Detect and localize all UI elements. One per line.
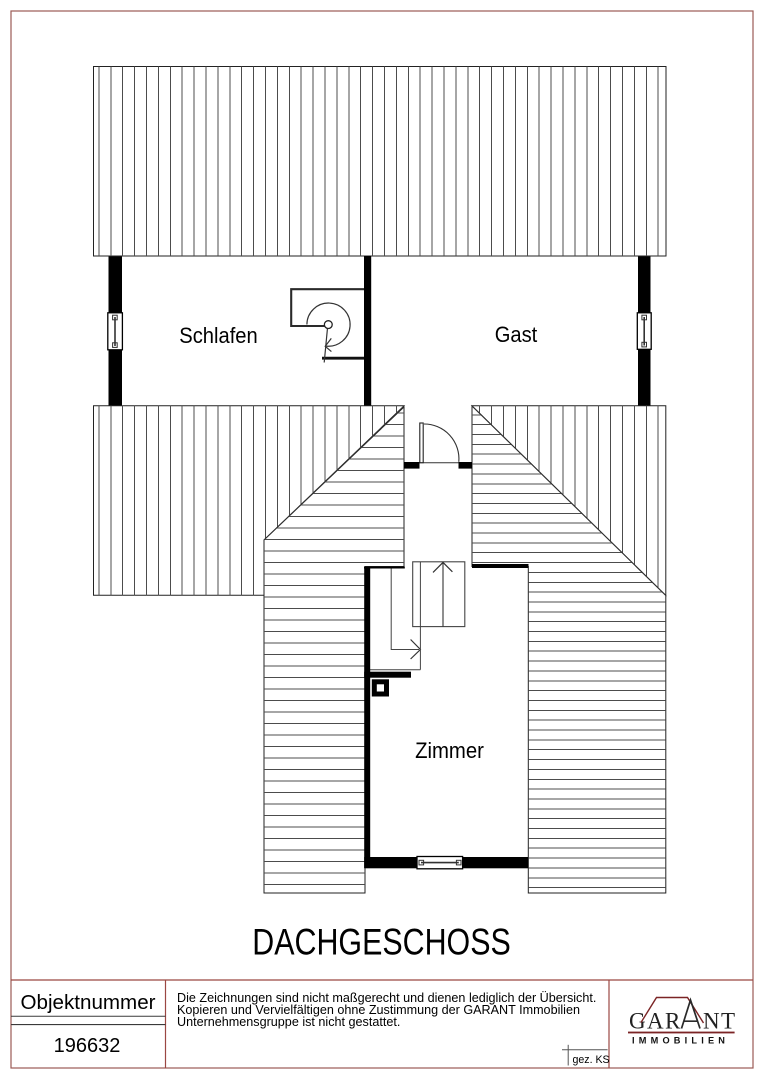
svg-text:IMMOBILIEN: IMMOBILIEN — [632, 1035, 729, 1045]
svg-text:Objektnummer: Objektnummer — [20, 991, 155, 1014]
svg-text:Schlafen: Schlafen — [179, 323, 257, 348]
svg-text:DACHGESCHOSS: DACHGESCHOSS — [252, 922, 511, 964]
svg-text:196632: 196632 — [54, 1035, 121, 1057]
svg-text:NT: NT — [703, 1008, 736, 1033]
svg-text:Zimmer: Zimmer — [415, 738, 484, 763]
svg-text:gez. KS: gez. KS — [573, 1054, 610, 1066]
svg-text:Gast: Gast — [495, 322, 538, 347]
svg-text:GAR: GAR — [629, 1008, 682, 1033]
svg-text:Unternehmensgruppe ist nicht g: Unternehmensgruppe ist nicht gestattet. — [177, 1015, 400, 1029]
